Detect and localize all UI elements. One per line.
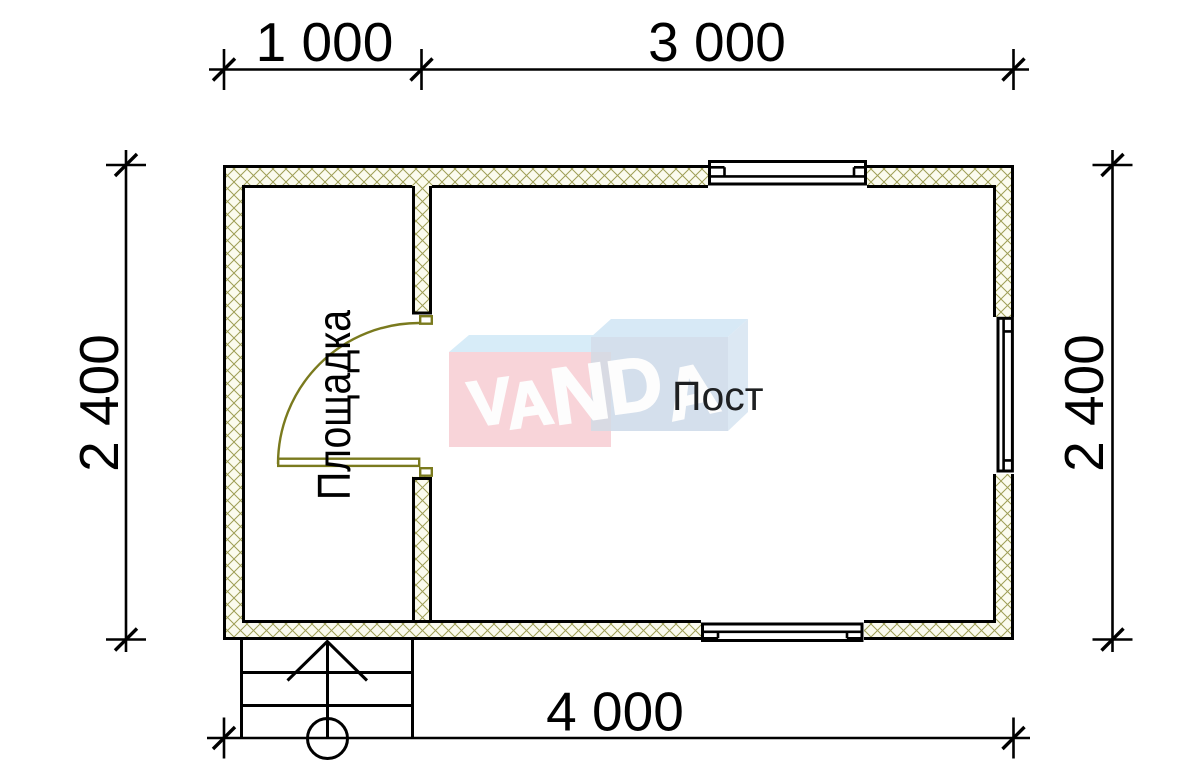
svg-text:Пост: Пост [672, 373, 764, 419]
svg-text:1 000: 1 000 [256, 11, 394, 73]
svg-text:4 000: 4 000 [546, 681, 684, 743]
svg-text:Площадка: Площадка [308, 310, 360, 500]
svg-text:2 400: 2 400 [68, 334, 130, 472]
svg-text:2 400: 2 400 [1053, 334, 1115, 472]
svg-text:D: D [602, 340, 668, 432]
svg-text:3 000: 3 000 [648, 11, 786, 73]
